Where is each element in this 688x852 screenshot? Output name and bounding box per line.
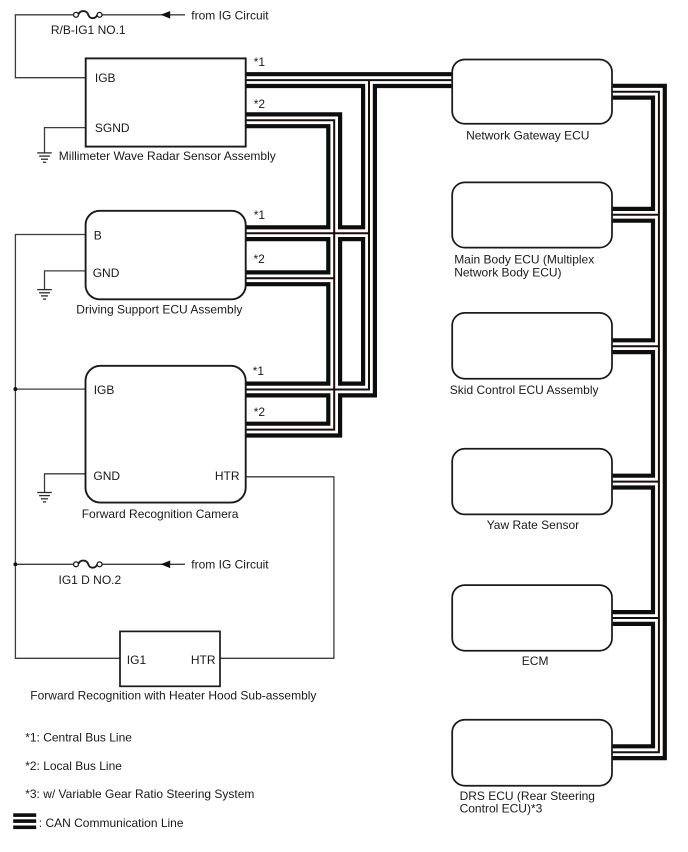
svg-text:IG1: IG1 bbox=[127, 653, 147, 667]
svg-text:GND: GND bbox=[93, 266, 120, 280]
svg-text:*2: *2 bbox=[254, 97, 266, 111]
svg-text:Millimeter Wave Radar Sensor A: Millimeter Wave Radar Sensor Assembly bbox=[59, 149, 276, 163]
svg-text:Skid Control ECU Assembly: Skid Control ECU Assembly bbox=[450, 383, 599, 397]
svg-text:Main Body ECU (Multiplex: Main Body ECU (Multiplex bbox=[454, 253, 594, 267]
svg-text:*2: *2 bbox=[254, 405, 266, 419]
svg-text:*1: *1 bbox=[254, 208, 266, 222]
svg-text:*1: *1 bbox=[253, 364, 265, 378]
svg-text:Forward Recognition with Heate: Forward Recognition with Heater Hood Sub… bbox=[30, 689, 316, 703]
svg-text:*1: Central Bus Line: *1: Central Bus Line bbox=[25, 731, 132, 745]
svg-text:from IG Circuit: from IG Circuit bbox=[191, 558, 269, 572]
svg-text:Yaw Rate Sensor: Yaw Rate Sensor bbox=[487, 518, 580, 532]
svg-text:IGB: IGB bbox=[94, 383, 115, 397]
svg-text:Network Gateway ECU: Network Gateway ECU bbox=[466, 128, 589, 142]
svg-text:GND: GND bbox=[93, 469, 120, 483]
svg-text:HTR: HTR bbox=[215, 469, 240, 483]
svg-text:Network Body ECU): Network Body ECU) bbox=[454, 266, 561, 280]
svg-text:*2: Local Bus Line: *2: Local Bus Line bbox=[25, 759, 122, 773]
svg-text:from IG Circuit: from IG Circuit bbox=[191, 8, 269, 22]
svg-text:*3: w/ Variable Gear Ratio Ste: *3: w/ Variable Gear Ratio Steering Syst… bbox=[25, 787, 254, 801]
svg-text:IGB: IGB bbox=[95, 71, 116, 85]
svg-text:Forward Recognition Camera: Forward Recognition Camera bbox=[82, 507, 239, 521]
svg-text:*1: *1 bbox=[254, 55, 266, 69]
svg-text:Control ECU)*3: Control ECU)*3 bbox=[460, 802, 543, 816]
svg-text:R/B-IG1 NO.1: R/B-IG1 NO.1 bbox=[51, 23, 126, 37]
svg-text:IG1 D NO.2: IG1 D NO.2 bbox=[59, 573, 122, 587]
svg-text:HTR: HTR bbox=[191, 653, 216, 667]
svg-text:SGND: SGND bbox=[95, 121, 130, 135]
svg-text:: CAN Communication Line: : CAN Communication Line bbox=[39, 816, 184, 830]
svg-text:B: B bbox=[94, 229, 102, 243]
svg-text:*2: *2 bbox=[254, 252, 266, 266]
svg-text:ECM: ECM bbox=[522, 654, 549, 668]
svg-text:Driving Support ECU Assembly: Driving Support ECU Assembly bbox=[76, 302, 242, 316]
